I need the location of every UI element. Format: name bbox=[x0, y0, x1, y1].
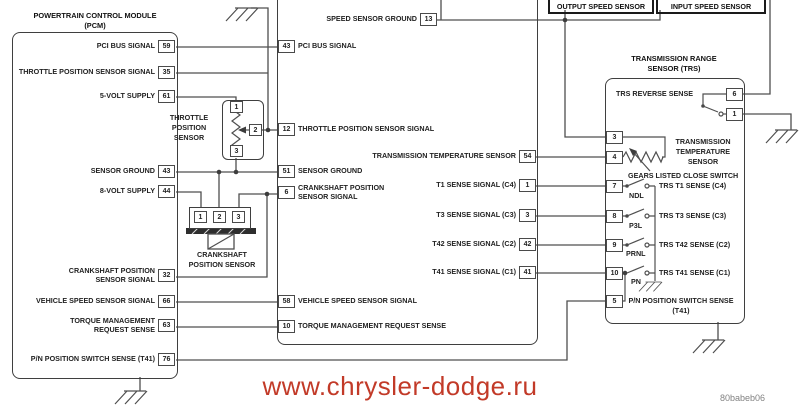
tcm-pin-row: 51 SENSOR GROUND bbox=[278, 165, 362, 178]
trs-sense-label: TRS T42 SENSE (C2) bbox=[659, 240, 730, 250]
pin-box: 51 bbox=[278, 165, 295, 178]
input-speed-sensor-label: INPUT SPEED SENSOR bbox=[671, 2, 751, 12]
pcm-title: POWERTRAIN CONTROL MODULE (PCM) bbox=[25, 11, 165, 31]
pin-box: 6 bbox=[278, 186, 295, 199]
pcm-pin-row: 8-VOLT SUPPLY 44 bbox=[15, 185, 175, 198]
trs-pin-box: 7 bbox=[606, 180, 623, 193]
pin-box: 43 bbox=[278, 40, 295, 53]
pin-label: T3 SENSE SIGNAL (C3) bbox=[436, 211, 516, 220]
ckp-pin-box: 1 bbox=[194, 211, 207, 223]
junction-dot bbox=[265, 192, 270, 197]
pcm-pin-row: THROTTLE POSITION SENSOR SIGNAL 35 bbox=[15, 66, 175, 79]
tcm-pin-row: T3 SENSE SIGNAL (C3) 3 bbox=[366, 209, 536, 222]
pin-label: PCI BUS SIGNAL bbox=[97, 42, 155, 51]
trs-pin-box: 1 bbox=[726, 108, 743, 121]
pin-box: 10 bbox=[278, 320, 295, 333]
pcm-pin-row: VEHICLE SPEED SENSOR SIGNAL 66 bbox=[15, 295, 175, 308]
trs-temp-label-line: SENSOR bbox=[668, 157, 738, 167]
pin-box: 32 bbox=[158, 269, 175, 282]
pin-box: 35 bbox=[158, 66, 175, 79]
tps-label-line: THROTTLE bbox=[158, 113, 220, 123]
ckp-label: CRANKSHAFT POSITION SENSOR bbox=[172, 250, 272, 270]
pin-box: 44 bbox=[158, 185, 175, 198]
tps-pin-box: 1 bbox=[230, 101, 243, 113]
pin-box: 63 bbox=[158, 319, 175, 332]
tps-pin-box: 2 bbox=[249, 124, 262, 136]
figure-code: 80babeb06 bbox=[720, 393, 765, 403]
pin-box: 61 bbox=[158, 90, 175, 103]
pcm-title-line1: POWERTRAIN CONTROL MODULE bbox=[25, 11, 165, 21]
pin-label: PCI BUS SIGNAL bbox=[298, 42, 356, 51]
pin-label: CRANKSHAFT POSITION SENSOR SIGNAL bbox=[55, 267, 155, 284]
trs-pin-box: 6 bbox=[726, 88, 743, 101]
pin-box: 1 bbox=[519, 179, 536, 192]
trs-pin-box: 10 bbox=[606, 267, 623, 280]
trs-gears-label: GEARS LISTED CLOSE SWITCH bbox=[628, 171, 738, 181]
ground-icon bbox=[115, 391, 147, 404]
pin-label: T41 SENSE SIGNAL (C1) bbox=[432, 268, 516, 277]
pcm-pin-row: 5-VOLT SUPPLY 61 bbox=[15, 90, 175, 103]
pcm-pin-row: SENSOR GROUND 43 bbox=[15, 165, 175, 178]
tcm-pin-row: TRANSMISSION TEMPERATURE SENSOR 54 bbox=[366, 150, 536, 163]
pin-box: 13 bbox=[420, 13, 437, 26]
trs-switch-name: NDL bbox=[629, 191, 644, 201]
pin-label: TRANSMISSION TEMPERATURE SENSOR bbox=[372, 152, 516, 161]
output-speed-sensor-box: OUTPUT SPEED SENSOR bbox=[548, 0, 654, 14]
ground-icon bbox=[766, 130, 798, 143]
junction-dot bbox=[266, 128, 271, 133]
pcm-pin-row: PCI BUS SIGNAL 59 bbox=[15, 40, 175, 53]
pin-box: 76 bbox=[158, 353, 175, 366]
trs-pn-label-line1: P/N POSITION SWITCH SENSE bbox=[622, 296, 740, 306]
pin-label: 8-VOLT SUPPLY bbox=[100, 187, 155, 196]
pin-label: TORQUE MANAGEMENT REQUEST SENSE bbox=[298, 322, 446, 331]
junction-dot bbox=[234, 170, 239, 175]
junction-dot bbox=[563, 18, 568, 23]
junction-dot bbox=[217, 170, 222, 175]
tcm-pin-row: 12 THROTTLE POSITION SENSOR SIGNAL bbox=[278, 123, 434, 136]
trs-pin-box: 4 bbox=[606, 151, 623, 164]
trs-pn-label-line2: (T41) bbox=[622, 306, 740, 316]
ground-icon bbox=[226, 8, 258, 21]
pin-box: 66 bbox=[158, 295, 175, 308]
wiring-diagram: POWERTRAIN CONTROL MODULE (PCM) PCI BUS … bbox=[0, 0, 800, 407]
tps-pin-box: 3 bbox=[230, 145, 243, 157]
pin-label: VEHICLE SPEED SENSOR SIGNAL bbox=[36, 297, 155, 306]
trs-switch-name: P3L bbox=[629, 221, 642, 231]
trs-pin-box: 8 bbox=[606, 210, 623, 223]
tcm-pin-row: T1 SENSE SIGNAL (C4) 1 bbox=[366, 179, 536, 192]
tps-label-line: POSITION bbox=[158, 123, 220, 133]
trs-switch-name: PRNL bbox=[626, 249, 646, 259]
trs-pn-label: P/N POSITION SWITCH SENSE (T41) bbox=[622, 296, 740, 316]
pcm-pin-row: P/N POSITION SWITCH SENSE (T41) 76 bbox=[15, 353, 175, 366]
pin-label: TORQUE MANAGEMENT REQUEST SENSE bbox=[60, 317, 155, 334]
ckp-pin-box: 2 bbox=[213, 211, 226, 223]
trs-switch-name: PN bbox=[631, 277, 641, 287]
trs-title-line2: SENSOR (TRS) bbox=[614, 64, 734, 74]
pin-box: 58 bbox=[278, 295, 295, 308]
tps-label: THROTTLE POSITION SENSOR bbox=[158, 113, 220, 143]
pin-box: 42 bbox=[519, 238, 536, 251]
trs-pin-box: 5 bbox=[606, 295, 623, 308]
trs-sense-label: TRS T41 SENSE (C1) bbox=[659, 268, 730, 278]
trs-temp-label-line: TEMPERATURE bbox=[668, 147, 738, 157]
pcm-pin-row: TORQUE MANAGEMENT REQUEST SENSE 63 bbox=[15, 317, 175, 334]
pcm-title-line2: (PCM) bbox=[25, 21, 165, 31]
pin-box: 3 bbox=[519, 209, 536, 222]
pin-box: 54 bbox=[519, 150, 536, 163]
trs-pin-box: 9 bbox=[606, 239, 623, 252]
trs-sense-label: TRS T3 SENSE (C3) bbox=[659, 211, 726, 221]
watermark-url: www.chrysler-dodge.ru bbox=[250, 371, 550, 402]
pin-label: P/N POSITION SWITCH SENSE (T41) bbox=[31, 355, 155, 364]
tcm-pin-row: 10 TORQUE MANAGEMENT REQUEST SENSE bbox=[278, 320, 446, 333]
tcm-pin-row: SPEED SENSOR GROUND 13 bbox=[317, 13, 437, 26]
ckp-sensor-graphic bbox=[186, 228, 256, 249]
wire-trs-pin1-ground bbox=[743, 114, 791, 130]
ground-icon bbox=[693, 340, 725, 353]
pin-label: SPEED SENSOR GROUND bbox=[326, 15, 417, 24]
pin-label: VEHICLE SPEED SENSOR SIGNAL bbox=[298, 297, 417, 306]
pin-label: T1 SENSE SIGNAL (C4) bbox=[436, 181, 516, 190]
pin-box: 41 bbox=[519, 266, 536, 279]
pin-label: T42 SENSE SIGNAL (C2) bbox=[432, 240, 516, 249]
pin-box: 12 bbox=[278, 123, 295, 136]
trs-sense-label: TRS T1 SENSE (C4) bbox=[659, 181, 726, 191]
ckp-pin-box: 3 bbox=[232, 211, 245, 223]
trs-temp-label-line: TRANSMISSION bbox=[668, 137, 738, 147]
pcm-pin-row: CRANKSHAFT POSITION SENSOR SIGNAL 32 bbox=[15, 267, 175, 284]
input-speed-sensor-box: INPUT SPEED SENSOR bbox=[656, 0, 766, 14]
ckp-label-line: POSITION SENSOR bbox=[172, 260, 272, 270]
trs-box bbox=[605, 78, 745, 324]
tcm-pin-row: 43 PCI BUS SIGNAL bbox=[278, 40, 356, 53]
pin-box: 43 bbox=[158, 165, 175, 178]
wire-trs-reverse bbox=[743, 0, 770, 94]
tcm-pin-row: T41 SENSE SIGNAL (C1) 41 bbox=[366, 266, 536, 279]
trs-temp-label: TRANSMISSION TEMPERATURE SENSOR bbox=[668, 137, 738, 167]
pin-box: 59 bbox=[158, 40, 175, 53]
pin-label: THROTTLE POSITION SENSOR SIGNAL bbox=[298, 125, 434, 134]
pin-label: SENSOR GROUND bbox=[298, 167, 362, 176]
output-speed-sensor-label: OUTPUT SPEED SENSOR bbox=[557, 2, 645, 12]
trs-pin-box: 3 bbox=[606, 131, 623, 144]
trs-title-line1: TRANSMISSION RANGE bbox=[614, 54, 734, 64]
tcm-pin-row: T42 SENSE SIGNAL (C2) 42 bbox=[366, 238, 536, 251]
trs-title: TRANSMISSION RANGE SENSOR (TRS) bbox=[614, 54, 734, 74]
pin-label: 5-VOLT SUPPLY bbox=[100, 92, 155, 101]
pin-label: THROTTLE POSITION SENSOR SIGNAL bbox=[19, 68, 155, 77]
tps-label-line: SENSOR bbox=[158, 133, 220, 143]
tcm-pin-row: 58 VEHICLE SPEED SENSOR SIGNAL bbox=[278, 295, 417, 308]
ckp-label-line: CRANKSHAFT bbox=[172, 250, 272, 260]
trs-reverse-sense-label: TRS REVERSE SENSE bbox=[616, 89, 693, 99]
pin-label: SENSOR GROUND bbox=[91, 167, 155, 176]
